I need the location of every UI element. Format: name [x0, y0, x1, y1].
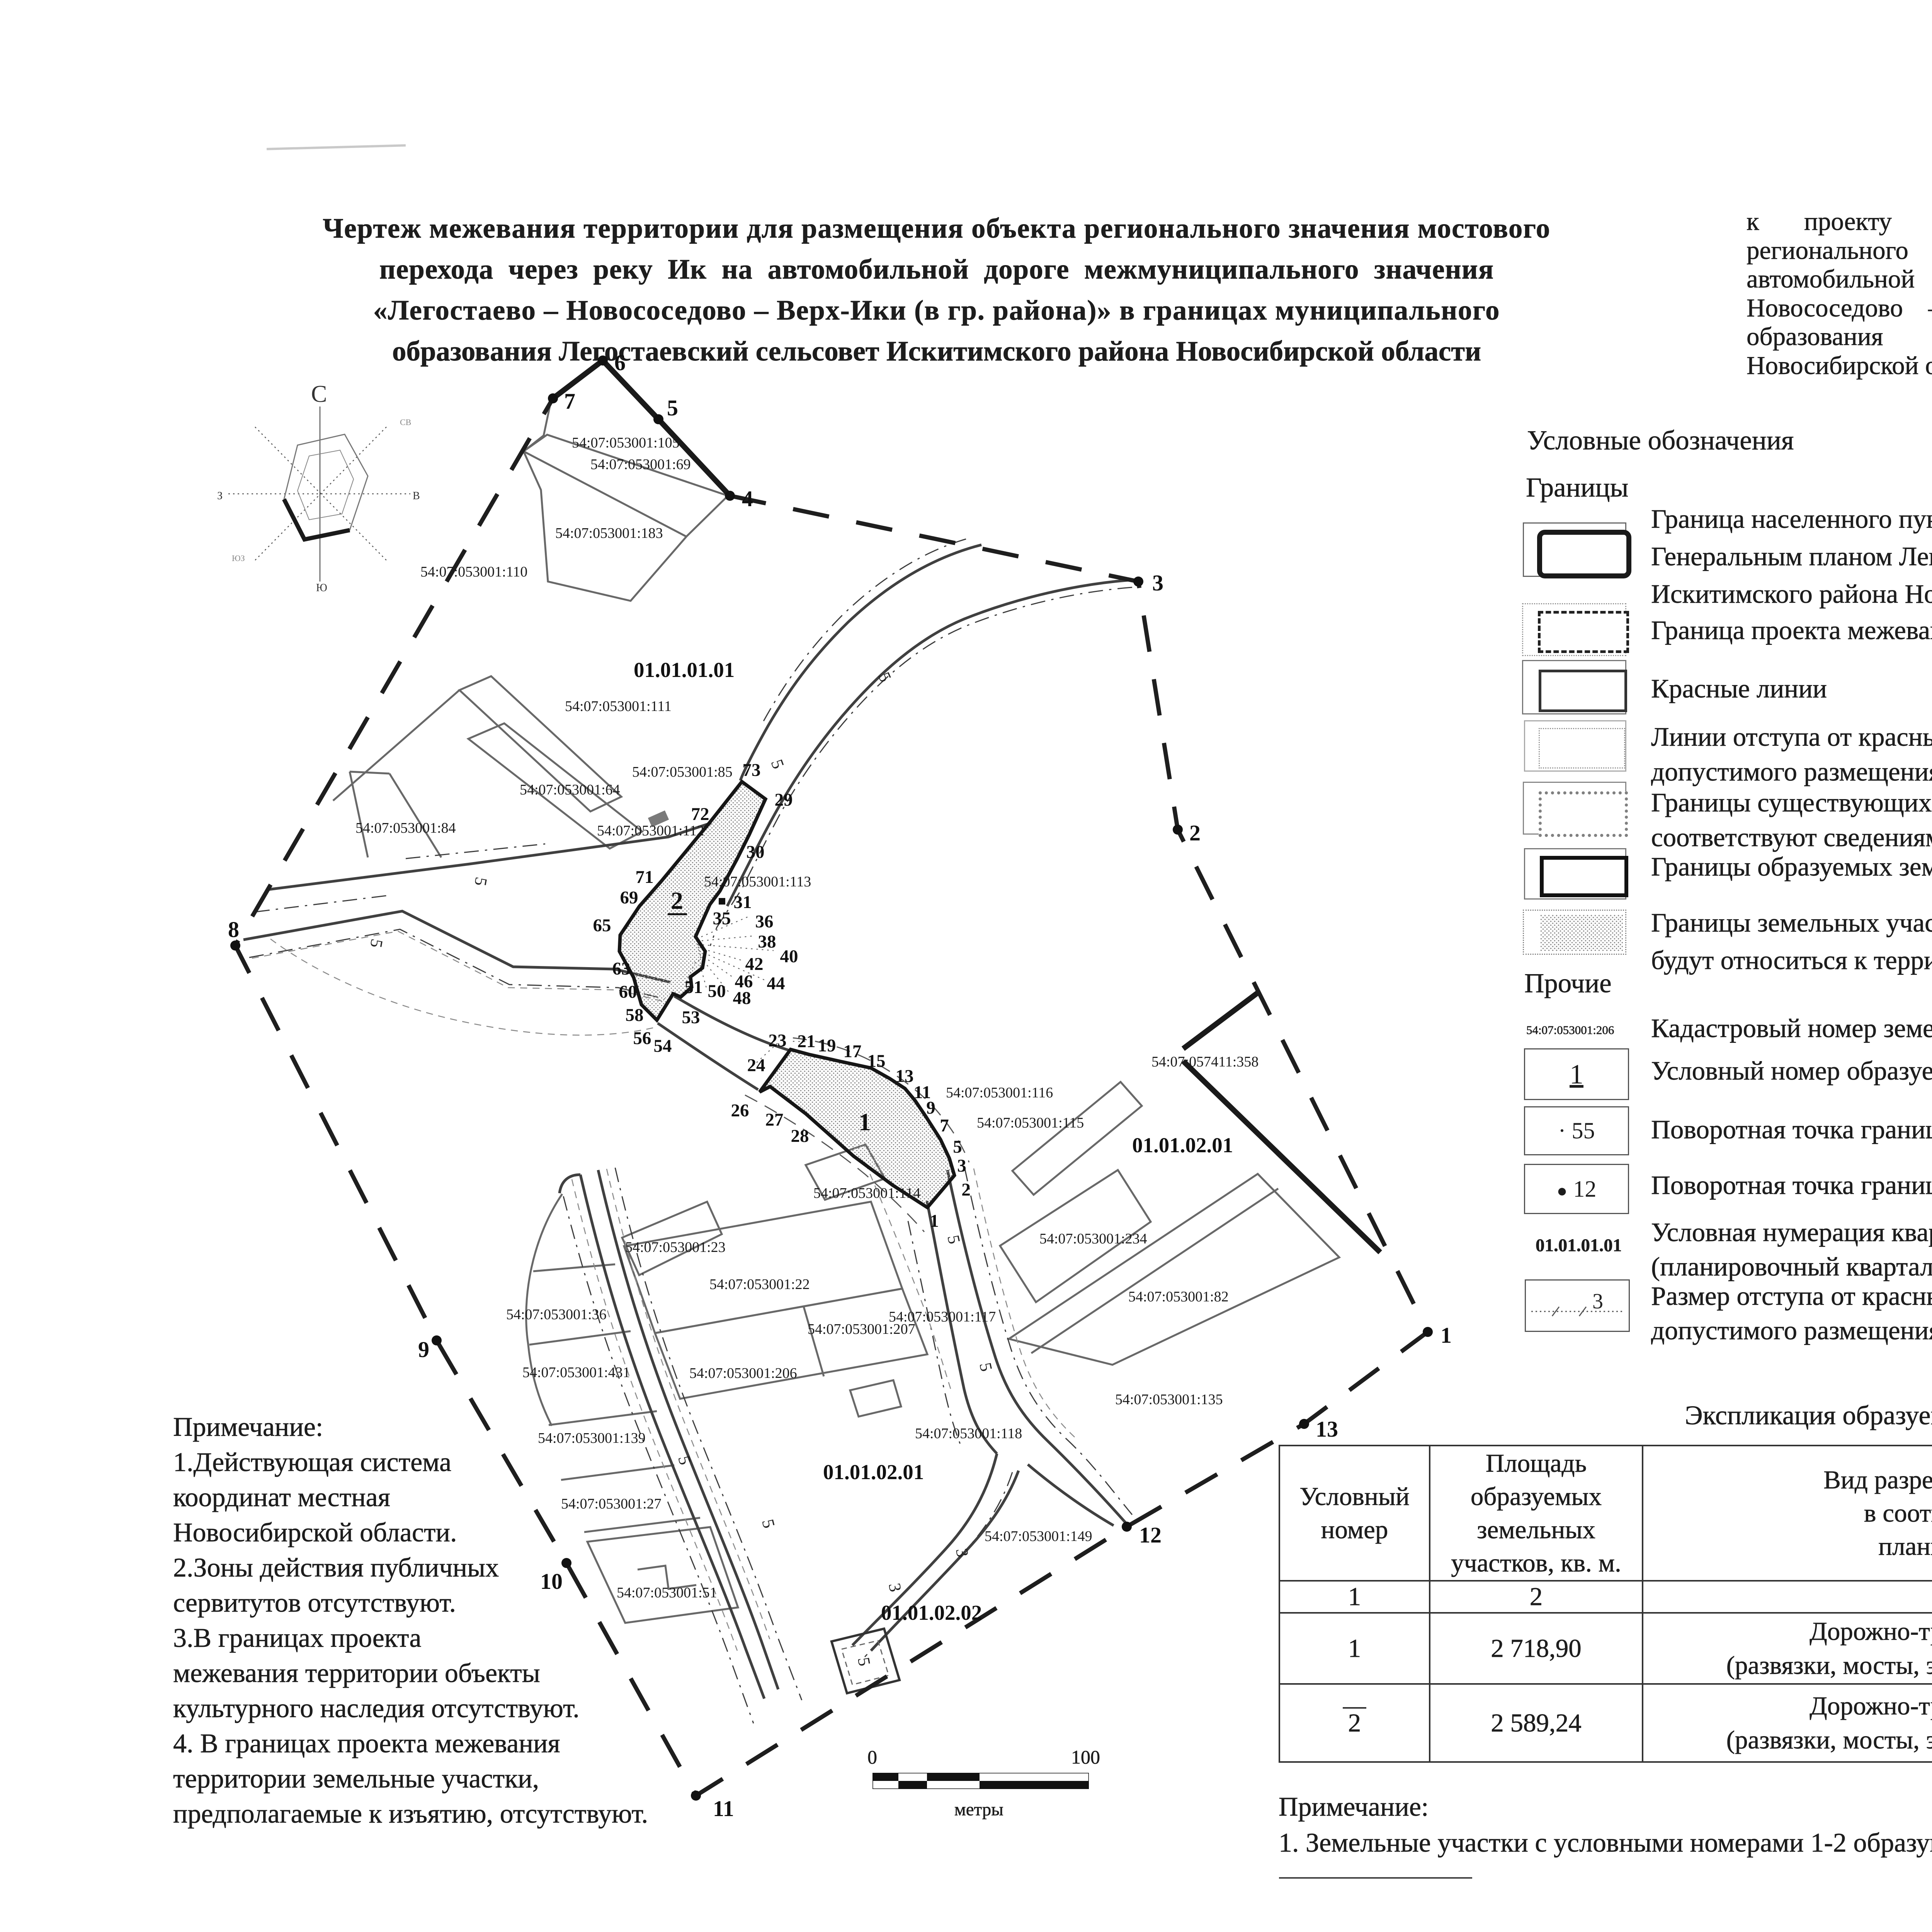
svg-text:60: 60 [619, 982, 637, 1002]
svg-text:54:07:053001:116: 54:07:053001:116 [946, 1085, 1053, 1101]
svg-text:54:07:053001:110: 54:07:053001:110 [420, 564, 527, 580]
svg-text:26: 26 [731, 1100, 749, 1121]
svg-text:З: З [217, 490, 223, 502]
svg-text:12: 12 [1139, 1522, 1162, 1548]
svg-text:72: 72 [691, 804, 709, 824]
svg-text:40: 40 [780, 946, 798, 966]
svg-text:63: 63 [612, 959, 631, 979]
svg-text:3: 3 [885, 1582, 905, 1593]
svg-text:5: 5 [366, 937, 386, 949]
svg-text:01.01.02.02: 01.01.02.02 [881, 1601, 982, 1624]
svg-text:5: 5 [667, 395, 678, 420]
svg-text:27: 27 [765, 1110, 784, 1130]
svg-text:28: 28 [791, 1126, 809, 1146]
svg-text:5: 5 [471, 876, 491, 887]
svg-text:54:07:053001:22: 54:07:053001:22 [709, 1276, 810, 1293]
svg-text:5: 5 [953, 1137, 962, 1157]
svg-text:54:07:053001:117: 54:07:053001:117 [889, 1309, 996, 1325]
svg-text:69: 69 [620, 888, 638, 908]
svg-text:54:07:053001:139: 54:07:053001:139 [538, 1430, 646, 1446]
svg-text:58: 58 [626, 1005, 644, 1025]
svg-text:54:07:053001:135: 54:07:053001:135 [1115, 1391, 1223, 1408]
svg-text:54:07:053001:27: 54:07:053001:27 [561, 1496, 662, 1512]
svg-text:13: 13 [896, 1066, 914, 1086]
svg-text:65: 65 [593, 915, 611, 935]
svg-text:54:07:053001:115: 54:07:053001:115 [977, 1115, 1084, 1131]
svg-text:3: 3 [1152, 570, 1163, 595]
svg-text:71: 71 [636, 867, 654, 887]
svg-text:13: 13 [1316, 1417, 1338, 1442]
svg-text:Ю: Ю [316, 582, 327, 594]
svg-text:56: 56 [633, 1028, 651, 1048]
svg-text:9: 9 [418, 1337, 429, 1362]
svg-text:44: 44 [767, 973, 785, 993]
svg-text:5: 5 [767, 757, 788, 771]
svg-text:38: 38 [758, 932, 776, 952]
svg-text:54: 54 [654, 1036, 672, 1056]
svg-text:ЮЗ: ЮЗ [232, 553, 245, 563]
svg-text:54:07:053001:234: 54:07:053001:234 [1039, 1231, 1147, 1247]
svg-text:5: 5 [854, 1656, 874, 1667]
svg-text:6: 6 [614, 350, 626, 375]
svg-text:01.01.02.01: 01.01.02.01 [1132, 1133, 1233, 1157]
svg-text:30: 30 [747, 842, 765, 862]
svg-text:54:07:053001:149: 54:07:053001:149 [985, 1528, 1092, 1544]
svg-text:15: 15 [867, 1051, 886, 1071]
svg-text:4: 4 [742, 486, 753, 511]
svg-text:10: 10 [540, 1569, 563, 1594]
svg-text:54:07:053001:85: 54:07:053001:85 [632, 764, 733, 780]
svg-text:54:07:053001:431: 54:07:053001:431 [522, 1364, 630, 1381]
svg-text:21: 21 [798, 1031, 816, 1051]
svg-text:54:07:053001:105: 54:07:053001:105 [572, 435, 680, 451]
svg-text:3: 3 [952, 1547, 972, 1558]
svg-text:19: 19 [818, 1036, 836, 1056]
svg-text:54:07:053001:23: 54:07:053001:23 [625, 1239, 726, 1255]
svg-text:1: 1 [859, 1108, 871, 1136]
svg-text:5: 5 [976, 1361, 996, 1373]
svg-text:5: 5 [944, 1233, 964, 1246]
svg-text:54:07:053001:112: 54:07:053001:112 [597, 823, 704, 839]
svg-text:54:07:053001:36: 54:07:053001:36 [506, 1306, 607, 1323]
svg-text:36: 36 [755, 912, 774, 932]
svg-text:54:07:053001:113: 54:07:053001:113 [704, 874, 811, 890]
svg-text:54:07:057411:358: 54:07:057411:358 [1151, 1054, 1259, 1070]
svg-text:11: 11 [713, 1796, 734, 1821]
svg-text:3: 3 [957, 1156, 966, 1176]
svg-text:23: 23 [769, 1031, 787, 1051]
svg-text:7: 7 [940, 1116, 949, 1136]
svg-text:01.01.02.01: 01.01.02.01 [823, 1460, 924, 1484]
svg-text:50: 50 [708, 981, 726, 1001]
svg-text:5: 5 [758, 1517, 779, 1530]
svg-text:01.01.01.01: 01.01.01.01 [634, 658, 735, 682]
svg-text:53: 53 [682, 1007, 700, 1027]
svg-text:9: 9 [926, 1098, 935, 1118]
svg-text:31: 31 [734, 892, 752, 912]
svg-text:С: С [311, 381, 327, 407]
svg-text:8: 8 [228, 917, 239, 942]
svg-text:51: 51 [685, 977, 703, 997]
svg-text:54:07:053001:118: 54:07:053001:118 [915, 1425, 1022, 1442]
svg-text:29: 29 [775, 790, 793, 810]
svg-text:54:07:053001:84: 54:07:053001:84 [355, 820, 456, 836]
svg-text:7: 7 [564, 389, 575, 414]
svg-text:2: 2 [671, 887, 683, 914]
svg-text:54:07:053001:114: 54:07:053001:114 [813, 1185, 920, 1201]
svg-text:73: 73 [743, 760, 761, 780]
svg-text:54:07:053001:51: 54:07:053001:51 [617, 1585, 717, 1601]
svg-text:54:07:053001:111: 54:07:053001:111 [565, 698, 672, 714]
svg-text:54:07:053001:183: 54:07:053001:183 [555, 525, 663, 541]
svg-text:24: 24 [747, 1055, 765, 1075]
svg-text:17: 17 [844, 1041, 862, 1061]
svg-text:1: 1 [930, 1211, 939, 1231]
svg-text:54:07:053001:82: 54:07:053001:82 [1128, 1289, 1229, 1305]
svg-text:48: 48 [733, 988, 751, 1008]
svg-text:2: 2 [1189, 820, 1201, 845]
svg-text:2: 2 [961, 1180, 971, 1200]
svg-text:1: 1 [1440, 1323, 1452, 1348]
svg-text:54:07:053001:206: 54:07:053001:206 [689, 1365, 797, 1381]
svg-text:54:07:053001:64: 54:07:053001:64 [520, 782, 620, 798]
svg-text:35: 35 [713, 908, 731, 929]
svg-text:54:07:053001:69: 54:07:053001:69 [590, 456, 691, 473]
svg-text:СВ: СВ [400, 417, 411, 427]
svg-text:В: В [413, 490, 420, 502]
